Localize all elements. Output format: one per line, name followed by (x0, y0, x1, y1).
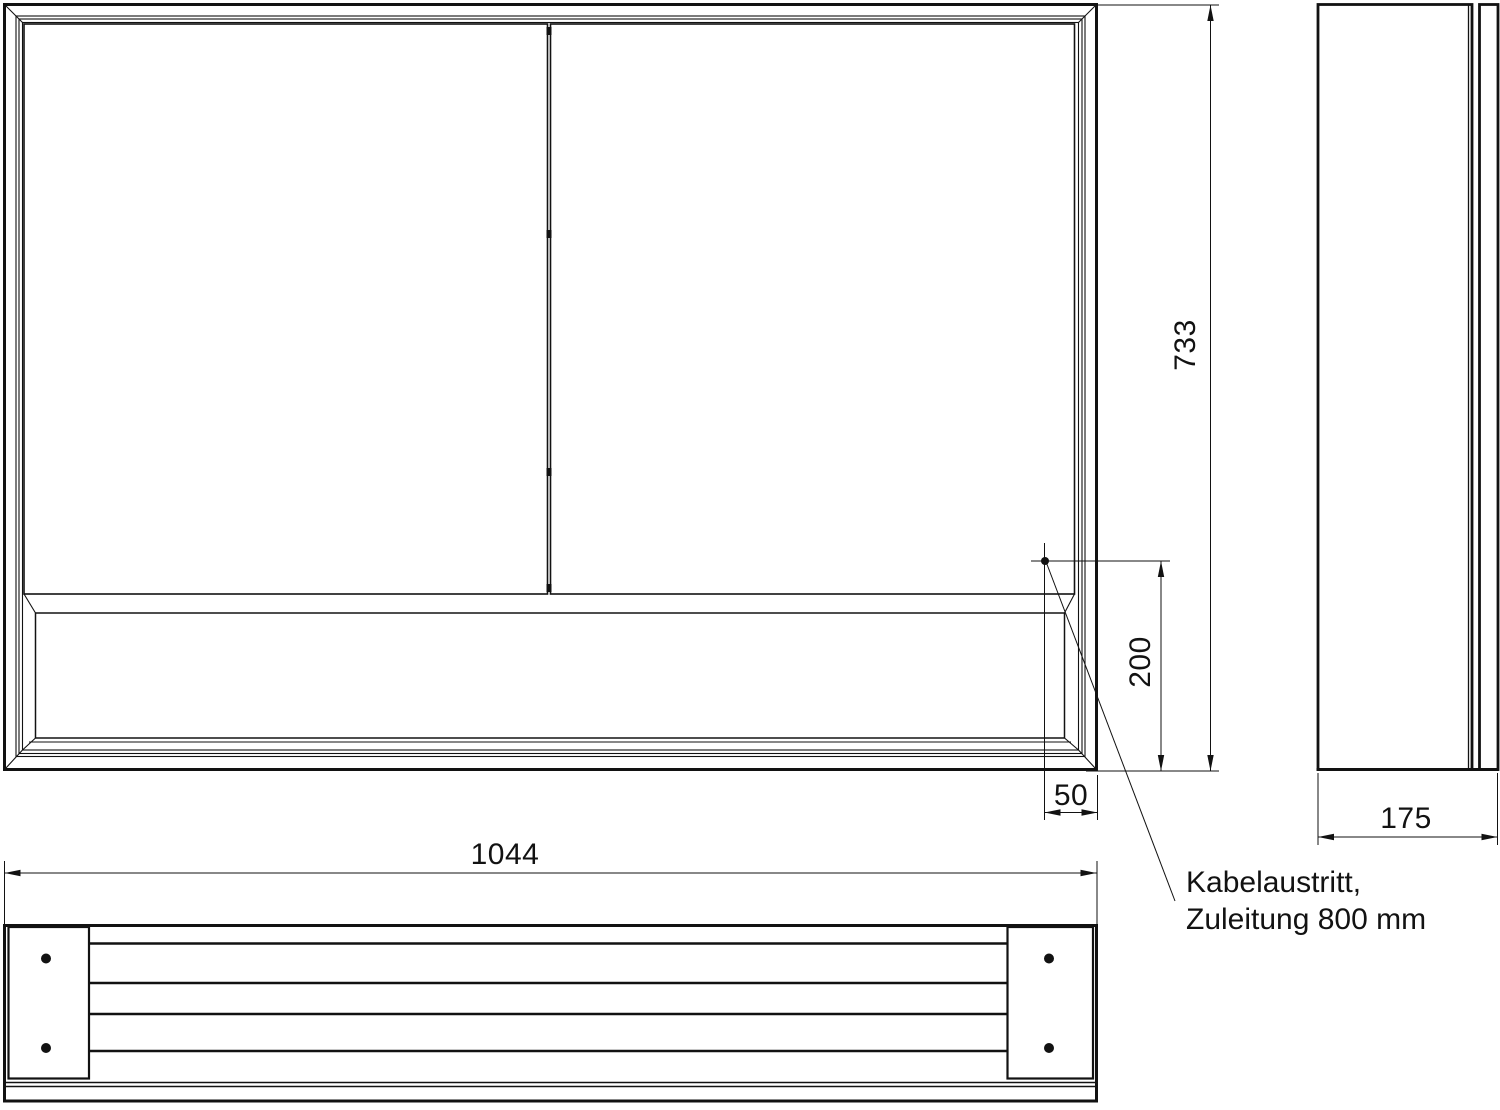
mounting-hole (1044, 954, 1054, 964)
mitre-bottom-right (1079, 750, 1096, 769)
shelf-corner-bottom-right (1065, 738, 1079, 750)
mounting-plate-right (1008, 927, 1094, 1079)
mitre-top-right (1079, 6, 1096, 23)
annotation-line-2: Zuleitung 800 mm (1186, 901, 1426, 938)
mounting-holes (41, 954, 1054, 1054)
arrowhead-left (5, 870, 21, 876)
hinge-mark (547, 468, 552, 476)
dim-width-1044 (5, 861, 1098, 930)
arrowhead-left (1318, 834, 1334, 840)
mounting-hole (41, 1043, 51, 1053)
shelf-corner-top-left (24, 594, 36, 613)
technical-drawing: 733 200 50 1044 175 Kabelaustritt, Zulei… (0, 0, 1500, 1110)
front-view (5, 5, 1097, 770)
side-body (1318, 5, 1472, 770)
drawing-linework (0, 0, 1500, 1110)
arrowhead-up (1207, 5, 1213, 21)
right-mirror-door (551, 24, 1075, 594)
hinge-mark (547, 27, 552, 35)
dim-label-cable-inset: 50 (1054, 779, 1088, 813)
arrowhead-down (1207, 755, 1213, 771)
shelf-corner-top-right (1065, 594, 1075, 613)
mounting-hole (1044, 1043, 1054, 1053)
leader-line-cable-outlet (1047, 563, 1176, 901)
mounting-plate-left (9, 927, 90, 1079)
shelf-corner-bottom-left (23, 738, 36, 750)
side-door-panel (1480, 5, 1499, 770)
annotation-line-1: Kabelaustritt, (1186, 864, 1426, 901)
mitre-bottom-left (6, 750, 23, 769)
hinge-mark (547, 230, 552, 238)
mounting-hole (41, 954, 51, 964)
arrowhead-right (1482, 834, 1498, 840)
bottom-view (5, 926, 1097, 1102)
arrowhead-up (1158, 561, 1164, 577)
dimensions (5, 5, 1498, 930)
cable-outlet-annotation: Kabelaustritt, Zuleitung 800 mm (1186, 864, 1426, 938)
mitre-top-left (6, 6, 23, 23)
left-mirror-door (24, 24, 548, 594)
side-view (1317, 5, 1500, 770)
arrowhead-down (1158, 755, 1164, 771)
dim-label-cable-height: 200 (1124, 636, 1158, 688)
dim-label-width: 1044 (471, 838, 540, 872)
arrowhead-right (1081, 870, 1097, 876)
dim-label-depth: 175 (1380, 802, 1432, 836)
hinge-mark (547, 584, 552, 592)
dim-label-height: 733 (1169, 319, 1203, 371)
open-shelf-recess (23, 594, 1079, 750)
